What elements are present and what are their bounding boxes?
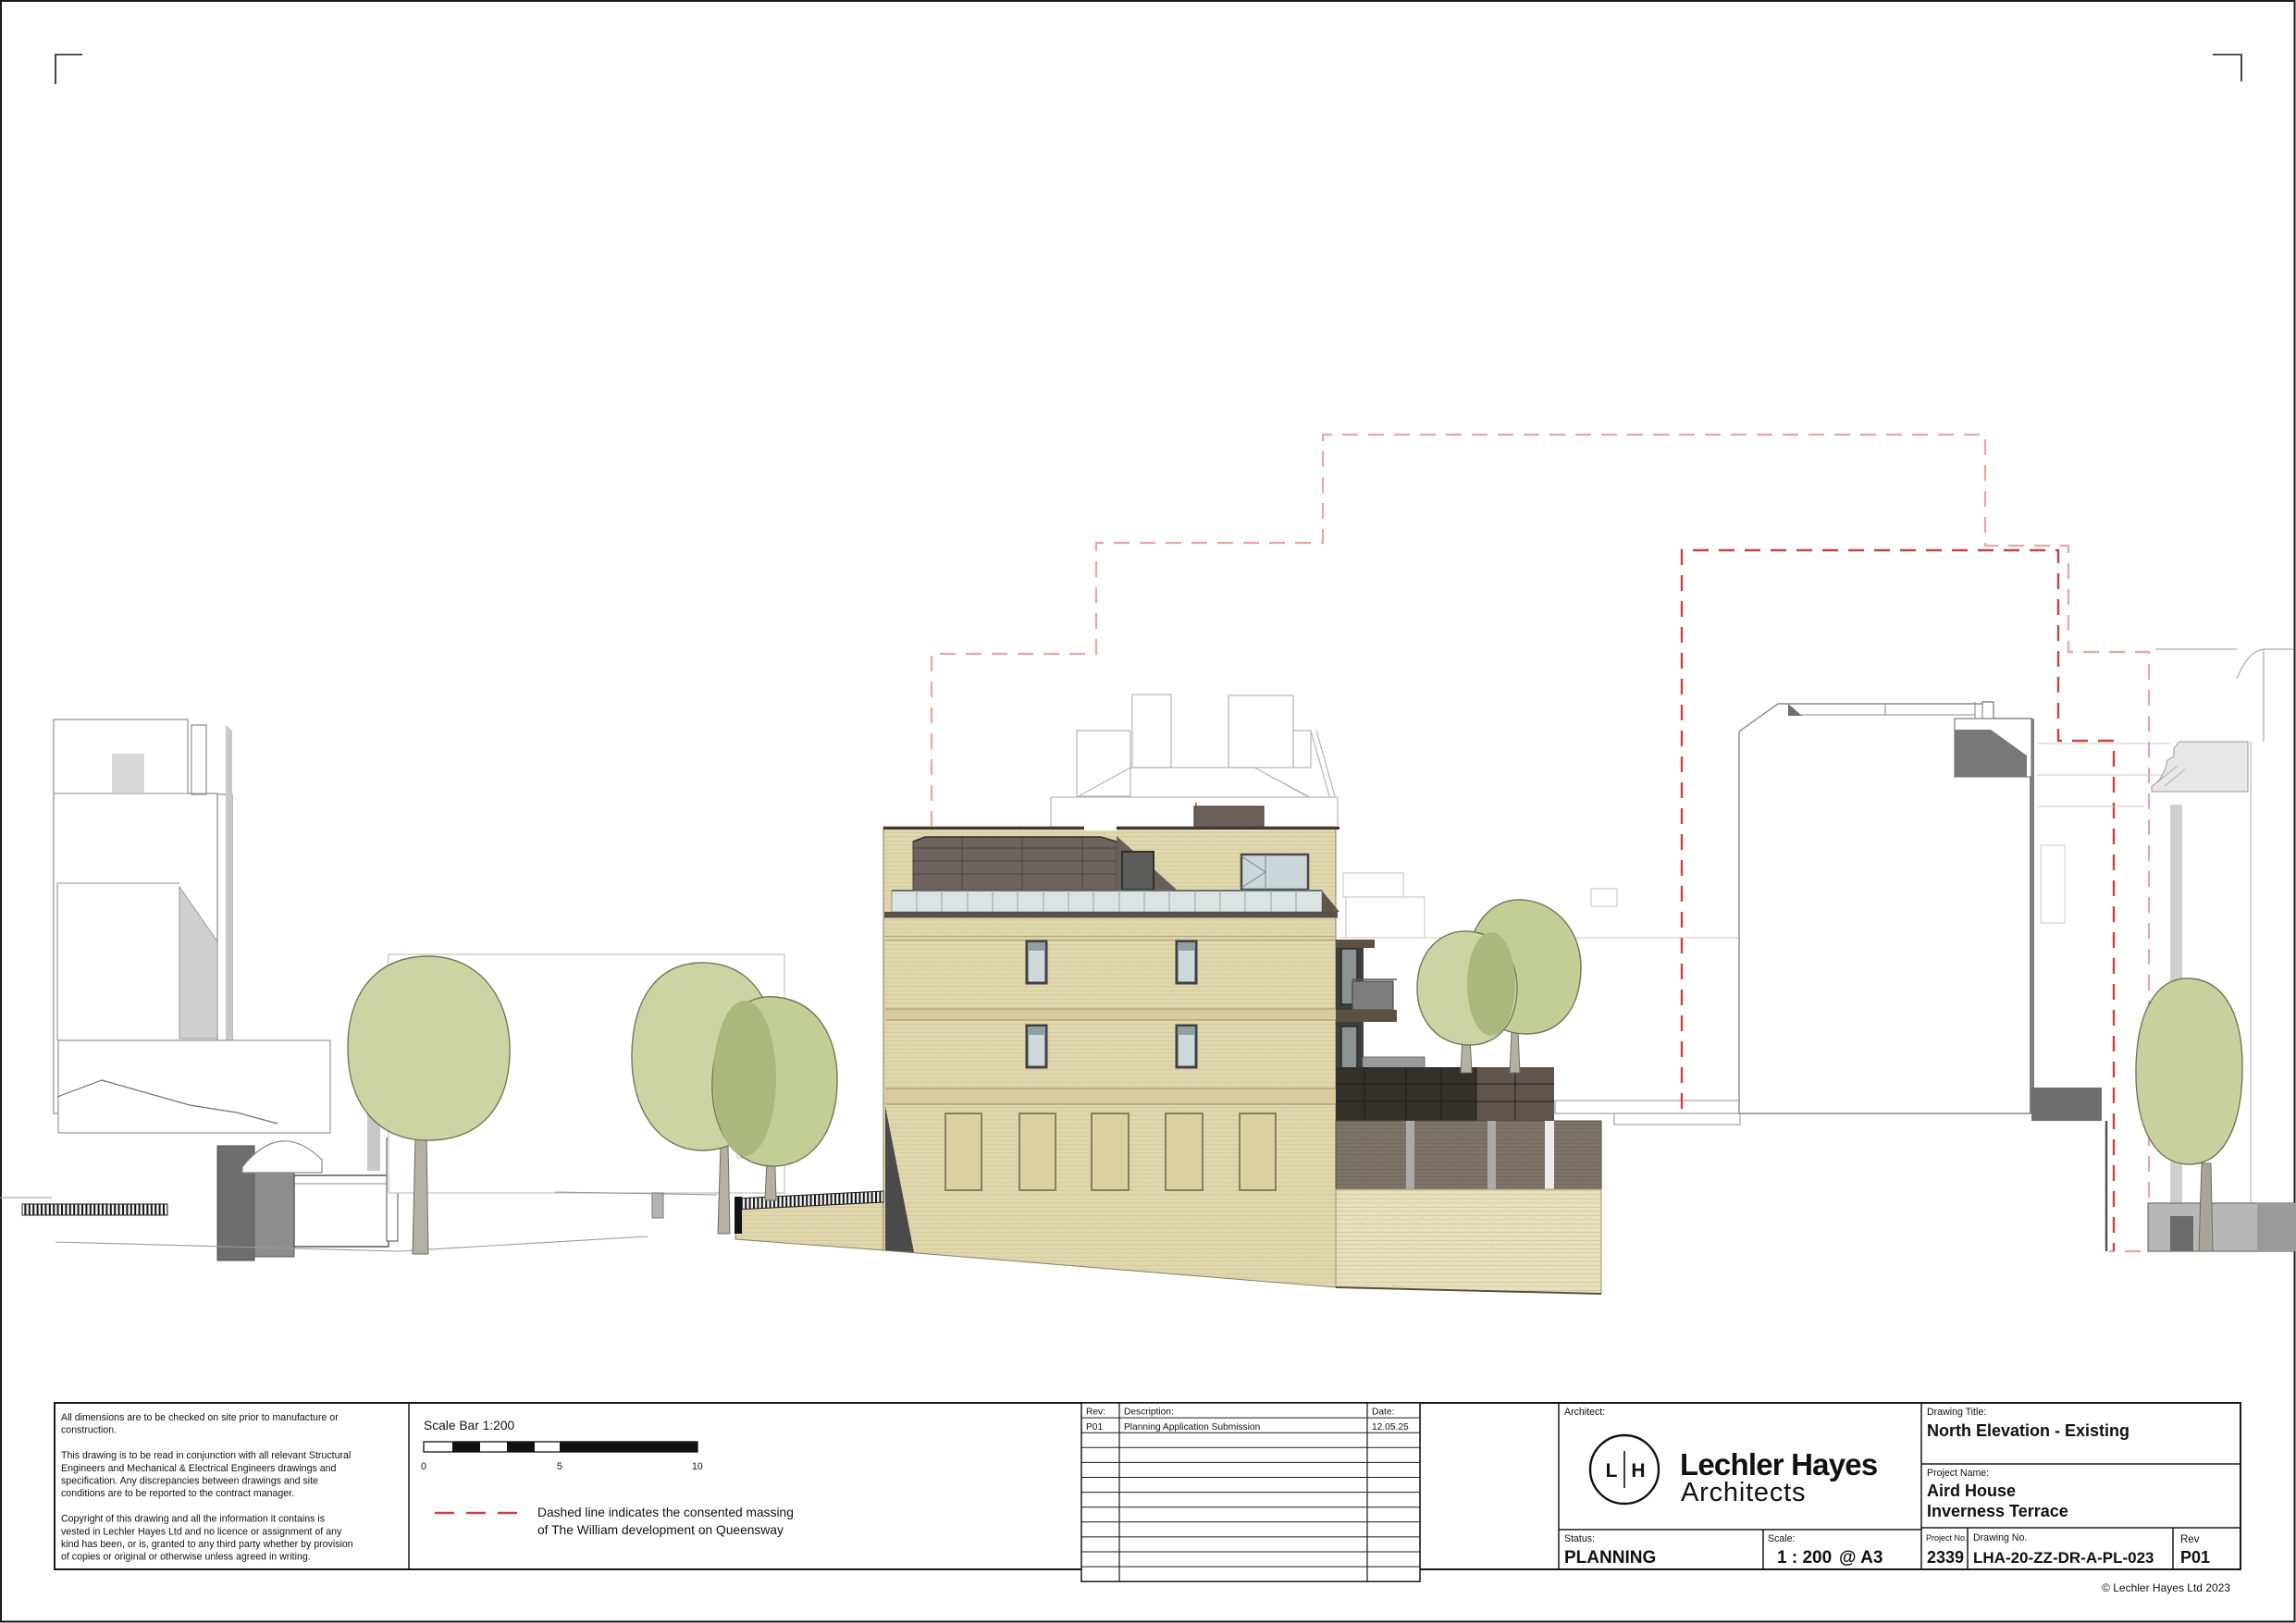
svg-text:© Lechler Hayes Ltd 2023: © Lechler Hayes Ltd 2023 — [2102, 1581, 2230, 1594]
svg-text:@ A3: @ A3 — [1839, 1548, 1882, 1568]
svg-text:of copies or original or other: of copies or original or otherwise unles… — [61, 1552, 311, 1563]
svg-text:Rev: Rev — [2180, 1534, 2200, 1545]
svg-text:Aird House: Aird House — [1927, 1482, 2016, 1500]
svg-text:kind has been, or is, granted: kind has been, or is, granted to any thi… — [61, 1539, 353, 1550]
svg-text:Project No.: Project No. — [1926, 1533, 1968, 1543]
svg-text:12.05.25: 12.05.25 — [1372, 1422, 1409, 1432]
svg-text:Rev:: Rev: — [1086, 1408, 1105, 1418]
svg-text:Date:: Date: — [1372, 1408, 1394, 1418]
svg-text:Project Name:: Project Name: — [1927, 1468, 1989, 1479]
svg-text:Scale:: Scale: — [1768, 1533, 1795, 1544]
svg-text:Scale Bar 1:200: Scale Bar 1:200 — [424, 1419, 515, 1432]
svg-text:Inverness Terrace: Inverness Terrace — [1927, 1502, 2068, 1520]
svg-text:construction.: construction. — [61, 1425, 117, 1436]
svg-text:of The William development on: of The William development on Queensway — [537, 1523, 784, 1537]
svg-text:North Elevation - Existing: North Elevation - Existing — [1927, 1421, 2129, 1440]
svg-text:Copyright of this drawing and: Copyright of this drawing and all the in… — [61, 1514, 325, 1525]
svg-text:vested in Lechler Hayes Ltd an: vested in Lechler Hayes Ltd and no licen… — [61, 1526, 342, 1537]
svg-text:Drawing Title:: Drawing Title: — [1927, 1407, 1986, 1418]
svg-text:LHA-20-ZZ-DR-A-PL-023: LHA-20-ZZ-DR-A-PL-023 — [1973, 1549, 2154, 1567]
svg-text:All dimensions are to be check: All dimensions are to be checked on site… — [61, 1412, 339, 1423]
svg-text:specification. Any discrepanci: specification. Any discrepancies between… — [61, 1476, 318, 1487]
svg-text:Status:: Status: — [1564, 1533, 1595, 1544]
svg-text:Description:: Description: — [1124, 1408, 1174, 1418]
svg-text:conditions are to be reported: conditions are to be reported to the con… — [61, 1488, 294, 1499]
svg-text:Dashed line indicates the cons: Dashed line indicates the consented mass… — [537, 1506, 794, 1519]
svg-text:Planning Application Submissio: Planning Application Submission — [1124, 1422, 1260, 1432]
svg-text:Architects: Architects — [1681, 1478, 1806, 1507]
svg-text:10: 10 — [692, 1461, 703, 1472]
svg-text:Lechler Hayes: Lechler Hayes — [1680, 1447, 1877, 1482]
svg-text:1 : 200: 1 : 200 — [1777, 1548, 1832, 1568]
svg-text:H: H — [1631, 1460, 1645, 1482]
svg-text:2339: 2339 — [1927, 1548, 1964, 1567]
svg-text:P01: P01 — [2180, 1548, 2210, 1567]
svg-text:P01: P01 — [1086, 1422, 1103, 1432]
svg-text:5: 5 — [557, 1461, 562, 1472]
svg-text:This drawing is to be read in: This drawing is to be read in conjunctio… — [61, 1450, 351, 1461]
svg-text:Drawing No.: Drawing No. — [1973, 1532, 2027, 1543]
svg-text:Architect:: Architect: — [1564, 1407, 1605, 1418]
svg-text:0: 0 — [421, 1461, 426, 1472]
svg-text:PLANNING: PLANNING — [1564, 1548, 1656, 1568]
svg-text:Engineers and Mechanical & Ele: Engineers and Mechanical & Electrical En… — [61, 1463, 336, 1474]
svg-text:L: L — [1606, 1460, 1618, 1482]
